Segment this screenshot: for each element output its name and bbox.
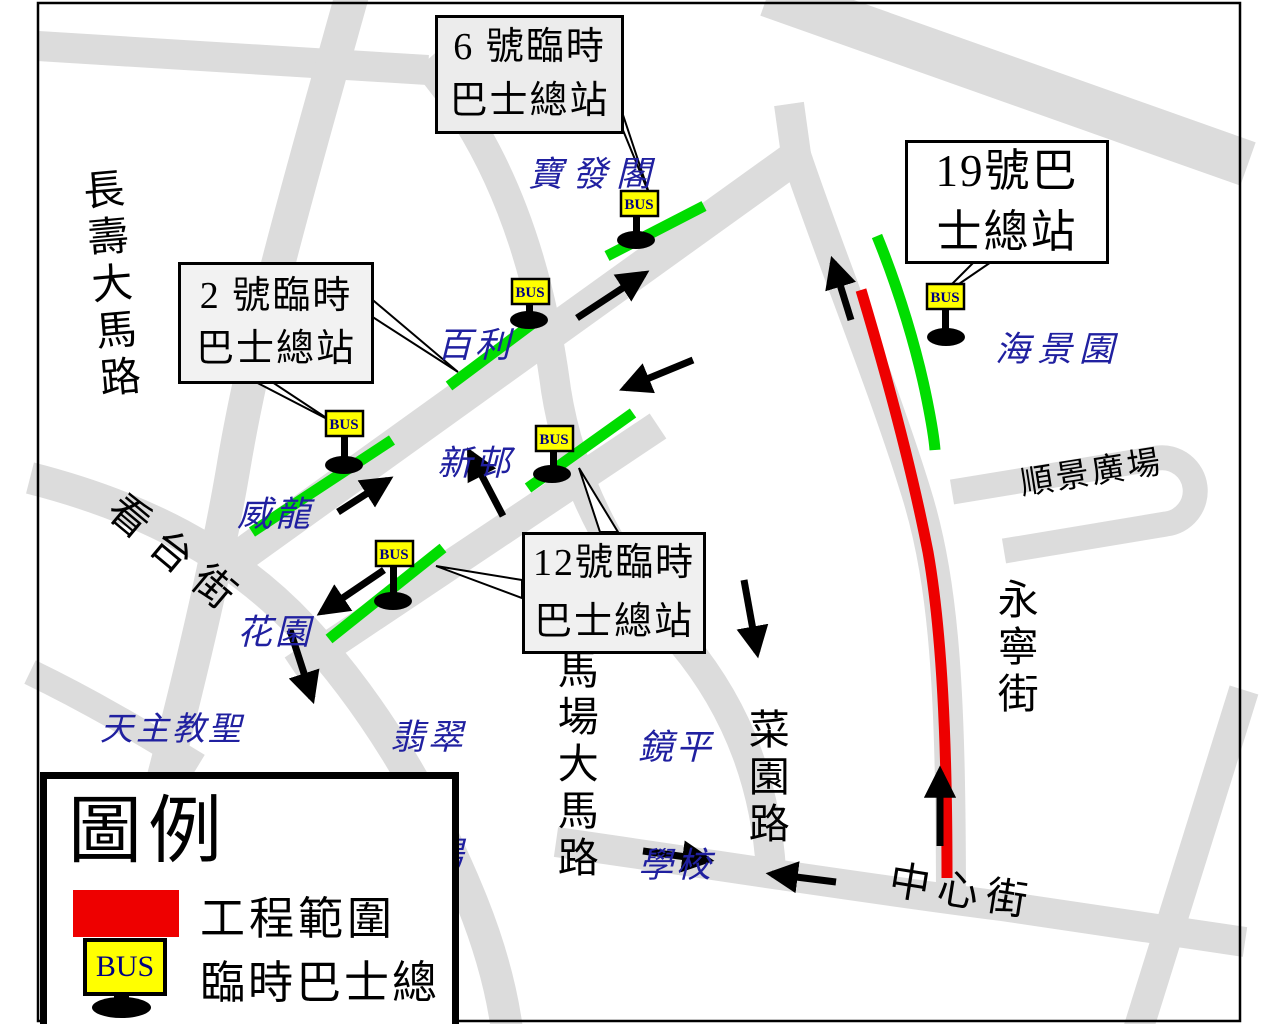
callout-6-line1: 6 號臨時 [453,21,606,74]
road-label-machang: 馬場大馬路 [552,648,596,883]
bus-sign-text: BUS [379,547,408,563]
callout-terminus-2: 2 號臨時 巴士總站 [178,262,374,384]
callout-12-line2: 巴士總站 [534,593,694,652]
bus-sign-text: BUS [930,290,959,306]
road-top-horizontal [38,46,428,70]
legend-bus-sign-text: BUS [96,950,154,984]
bus-sign-text: BUS [515,285,544,301]
place-label-baofa: 寶發閣 [528,155,660,194]
callout-19-line2: 士總站 [936,202,1077,263]
arrow-sw-main [625,360,693,388]
bus-sign-text: BUS [624,197,653,213]
road-label-caiyuan: 菜園路 [743,708,787,849]
place-label-baili-line1: 百利 [437,326,513,365]
place-label-weilong-line2: 花園 [237,613,313,652]
place-label-baili-line2: 新邨 [437,444,513,483]
callout-terminus-19: 19號巴 士總站 [905,140,1109,264]
road-junction-stub [789,104,799,176]
legend-box: 圖例 工程範圍 BUS 臨時巴士總站 [40,772,459,1024]
arrow-s-caiyuan [744,580,757,652]
map-page: BUS BUS BUS BUS BUS [0,0,1280,1024]
legend-bus-sign-icon: BUS [83,938,167,996]
place-label-weilong: 威龍 花園 [237,417,313,691]
place-label-haijing: 海景園 [995,330,1121,369]
place-label-catholic-line1: 天主教聖 [100,712,244,749]
road-label-yongning: 永寧街 [992,578,1036,719]
callout-6-line2: 巴士總站 [449,75,609,128]
works-area-swatch [73,890,179,937]
place-label-jingping-line2: 學校 [638,846,714,885]
legend-bus-base [92,997,151,1018]
callout-19-line1: 19號巴 [935,141,1078,202]
place-label-jingping: 鏡平 學校 [638,650,714,924]
legend-terminus-label: 臨時巴士總站 [200,946,452,1024]
bus-sign-text: BUS [539,432,568,448]
place-label-jingping-line1: 鏡平 [638,728,714,767]
road-bottomright-diagonal [1138,690,1244,1024]
place-label-baili: 百利 新邨 [437,248,513,522]
callout-terminus-6: 6 號臨時 巴士總站 [435,15,624,134]
bus-stop-19: BUS [927,284,965,346]
place-label-weilong-line1: 威龍 [237,495,313,534]
bus-stop-baofa: BUS [617,191,658,249]
place-label-feicui-line1: 翡翠 [390,718,466,757]
callout-2-line1: 2 號臨時 [200,270,353,323]
bus-stop-baili: BUS [510,279,549,329]
callout-terminus-12: 12號臨時 巴士總站 [522,532,706,654]
legend-works-label: 工程範圍 [200,882,396,947]
bus-sign-text: BUS [329,417,358,433]
legend-title: 圖例 [68,771,228,878]
callout-12-line1: 12號臨時 [533,534,695,593]
bus-stop-weilong: BUS [325,411,363,474]
callout-2-line2: 巴士總站 [196,323,356,376]
